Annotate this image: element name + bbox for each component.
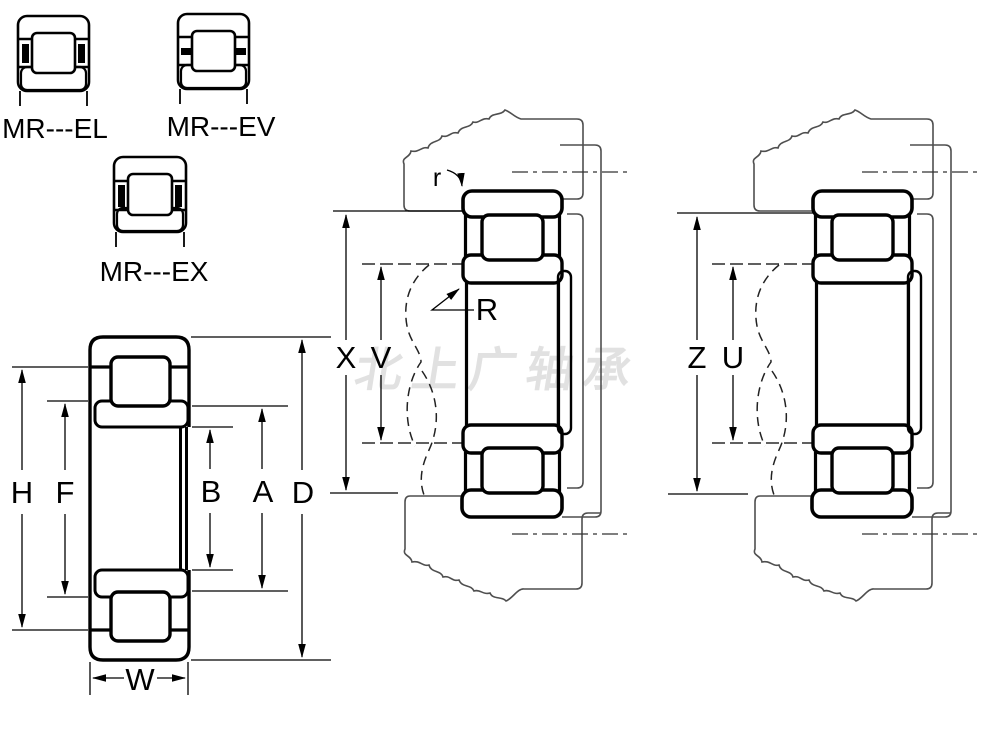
type-label-el: MR---EL bbox=[2, 113, 108, 144]
dim-label-w: W bbox=[125, 662, 155, 697]
drawing-canvas: 北上广轴承 MR---EL MR---EV MR---EX bbox=[0, 0, 1000, 750]
dim-label-x: X bbox=[336, 340, 357, 375]
roller-bottom bbox=[111, 592, 170, 641]
dim-label-d: D bbox=[292, 475, 314, 510]
icon-shaft-lines bbox=[20, 91, 87, 106]
dim-label-b: B bbox=[201, 474, 222, 509]
icon-cage-bar bbox=[235, 48, 246, 55]
icon-cage-bar bbox=[78, 44, 85, 63]
type-icon-ex bbox=[114, 157, 186, 247]
dim-label-v: V bbox=[371, 340, 392, 375]
icon-shaft-lines bbox=[116, 232, 184, 247]
type-label-ex: MR---EX bbox=[100, 256, 209, 287]
icon-cage-bar bbox=[118, 185, 125, 207]
type-icon-ev bbox=[178, 14, 249, 104]
icon-roller bbox=[32, 33, 75, 73]
dim-label-u: U bbox=[722, 340, 744, 375]
bore-walls bbox=[181, 427, 187, 570]
right-view-dimensions: Z U bbox=[668, 213, 814, 494]
dim-label-z: Z bbox=[688, 340, 707, 375]
icon-cage-bar bbox=[175, 185, 182, 207]
icon-cage-bar bbox=[181, 48, 192, 55]
leader-r bbox=[447, 170, 462, 186]
left-view-bearing bbox=[90, 337, 189, 660]
roller-top bbox=[111, 357, 170, 406]
dim-label-f: F bbox=[56, 475, 75, 510]
dim-label-a: A bbox=[253, 474, 274, 509]
type-label-ev: MR---EV bbox=[167, 111, 276, 142]
dim-label-h: H bbox=[11, 475, 33, 510]
middle-view-dimensions: X V r R bbox=[330, 164, 498, 493]
callout-label-R: R bbox=[476, 292, 498, 327]
icon-roller bbox=[128, 174, 172, 215]
callout-label-r: r bbox=[433, 164, 441, 192]
icon-cage-bar bbox=[22, 44, 29, 63]
bearing-dimension-drawing: 北上广轴承 MR---EL MR---EV MR---EX bbox=[0, 0, 1000, 750]
icon-roller bbox=[192, 31, 235, 71]
type-icon-el bbox=[18, 16, 89, 106]
icon-shaft-lines bbox=[180, 89, 247, 104]
right-view-assembly bbox=[753, 110, 982, 601]
